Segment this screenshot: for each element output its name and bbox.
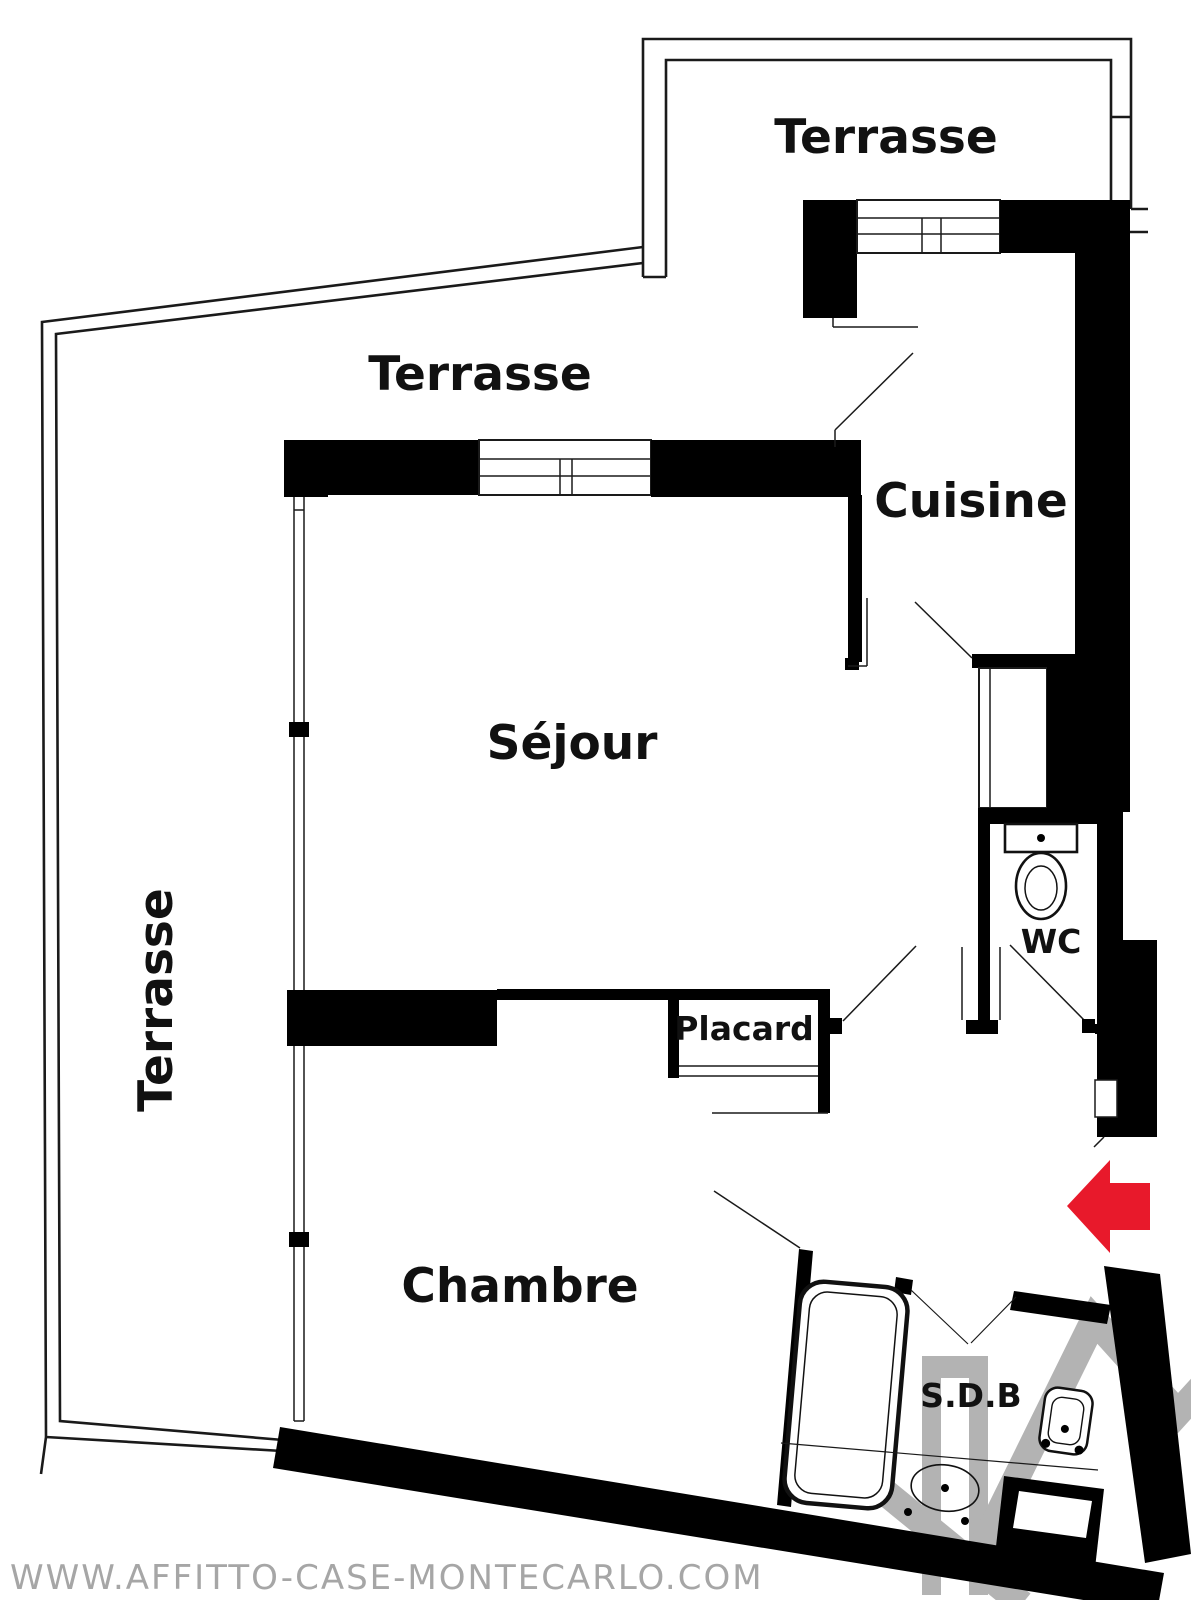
kitchen-counter	[979, 666, 1130, 812]
wall-cuisine-east	[1075, 253, 1130, 665]
bathtub-icon	[783, 1280, 910, 1511]
wc-room	[962, 808, 1157, 1137]
wall-north-pier	[803, 200, 857, 318]
hall-door-jamb-block	[828, 1018, 842, 1034]
wc-door-jamb-block	[1082, 1019, 1095, 1033]
wc-toilet-icon	[1016, 853, 1066, 919]
window-north	[857, 200, 1000, 253]
door-swing-sdb	[911, 1290, 1016, 1344]
sdb-fitting-dot	[961, 1517, 969, 1525]
room-label-placard: Placard	[674, 1009, 814, 1048]
wall-north-right	[1000, 200, 1130, 253]
room-label-wc: WC	[1021, 922, 1082, 961]
wc-south-wall-bit	[1095, 1024, 1123, 1034]
watermark-url: WWW.AFFITTO-CASE-MONTECARLO.COM	[10, 1558, 764, 1598]
entrance-arrow-icon	[1067, 1160, 1150, 1253]
wall-cuisine-south	[972, 654, 1130, 668]
wc-left-wall	[978, 824, 990, 1020]
room-label-terrasse-top: Terrasse	[774, 110, 998, 165]
wall-sejour-chambre-thin	[497, 989, 830, 1000]
room-label-terrasse-left: Terrasse	[129, 888, 184, 1112]
door-swing-chambre	[714, 1191, 800, 1248]
wall-sejour-north-right	[651, 440, 861, 497]
window-wall-west	[284, 440, 328, 1421]
wc-top-wall	[978, 808, 1123, 824]
door-swing-cuisine	[915, 602, 972, 658]
wall-sdb-top	[1010, 1291, 1111, 1324]
wall-sejour-cuisine	[845, 495, 867, 670]
wall-sejour-chambre-thick	[287, 990, 497, 1046]
room-label-cuisine: Cuisine	[874, 474, 1068, 529]
entry-door-tick	[1094, 1137, 1104, 1147]
wc-right-wall-upper	[1097, 824, 1123, 940]
window-sejour-north	[479, 440, 651, 495]
floor-plan: Terrasse Terrasse Cuisine Séjour Chambre…	[0, 0, 1191, 1600]
wall-pier-west-mid	[289, 722, 309, 737]
placard-shelf-lines	[679, 1066, 828, 1113]
placard-right-wall	[818, 990, 830, 1113]
sdb-fitting-dot	[904, 1508, 912, 1516]
door-swing-sejour-hall	[843, 946, 916, 1021]
bidet-icon	[1038, 1386, 1094, 1456]
wall-sejour-north-left	[286, 440, 479, 495]
wc-left-wall-foot	[966, 1020, 998, 1034]
room-label-terrasse-middle: Terrasse	[368, 347, 592, 402]
room-label-sejour: Séjour	[487, 716, 659, 771]
entry-door-notch	[1095, 1080, 1117, 1117]
floor-plan-canvas: Terrasse Terrasse Cuisine Séjour Chambre…	[0, 0, 1191, 1600]
room-label-sdb: S.D.B	[920, 1376, 1021, 1415]
wall-pier-west-low	[289, 1232, 309, 1247]
door-terrace-cuisine	[833, 318, 918, 447]
room-label-chambre: Chambre	[401, 1259, 638, 1314]
